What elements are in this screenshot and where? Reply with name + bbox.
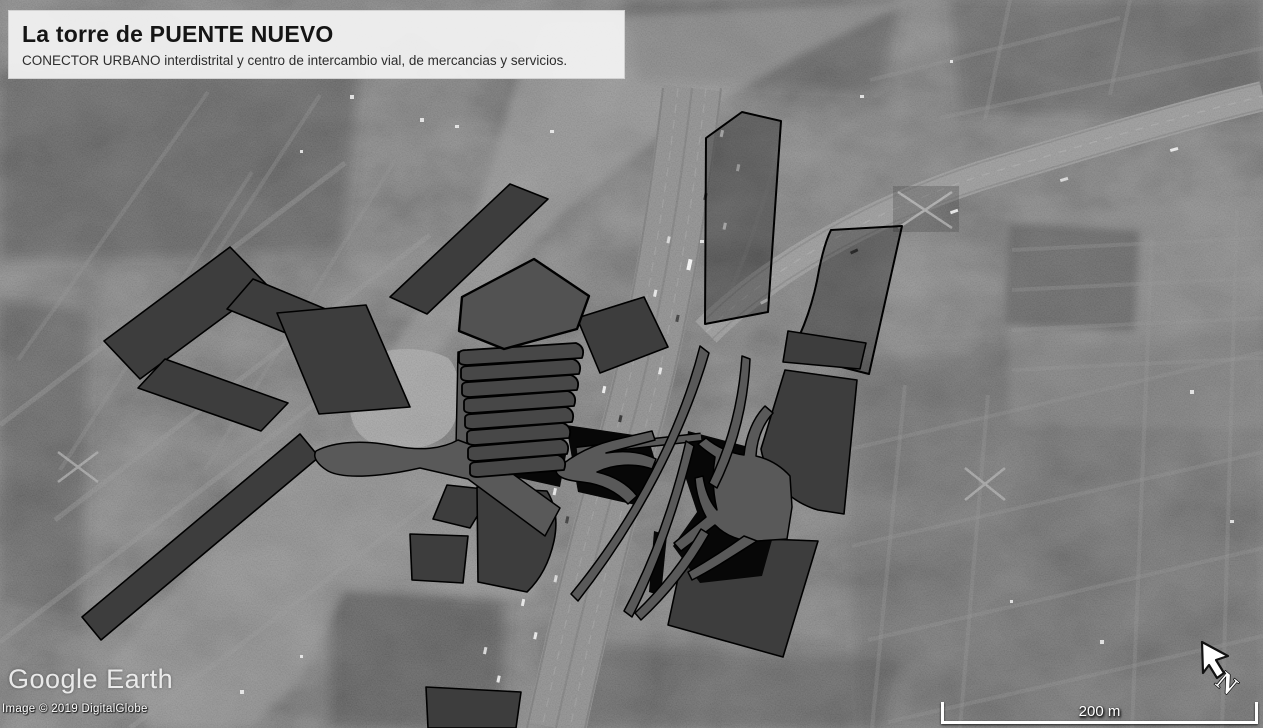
imagery-attribution: Image © 2019 DigitalGlobe: [2, 703, 148, 715]
map-canvas[interactable]: [0, 0, 1263, 728]
scale-bar: 200 m: [941, 702, 1258, 724]
proposal-block[interactable]: [410, 534, 468, 583]
scale-bar-label: 200 m: [941, 703, 1258, 720]
proposal-block[interactable]: [426, 687, 521, 728]
north-arrow[interactable]: N: [1192, 636, 1254, 702]
satellite-basemap: [0, 0, 1263, 728]
project-title: La torre de PUENTE NUEVO: [22, 20, 610, 48]
project-title-card: La torre de PUENTE NUEVO CONECTOR URBANO…: [8, 10, 625, 79]
google-earth-logo: Google Earth: [8, 664, 173, 695]
image-grain: [0, 0, 1263, 728]
scale-bar-line: [941, 721, 1258, 724]
google-earth-viewport[interactable]: La torre de PUENTE NUEVO CONECTOR URBANO…: [0, 0, 1263, 728]
project-subtitle: CONECTOR URBANO interdistrital y centro …: [22, 52, 610, 69]
outlined-zone[interactable]: [705, 112, 781, 324]
